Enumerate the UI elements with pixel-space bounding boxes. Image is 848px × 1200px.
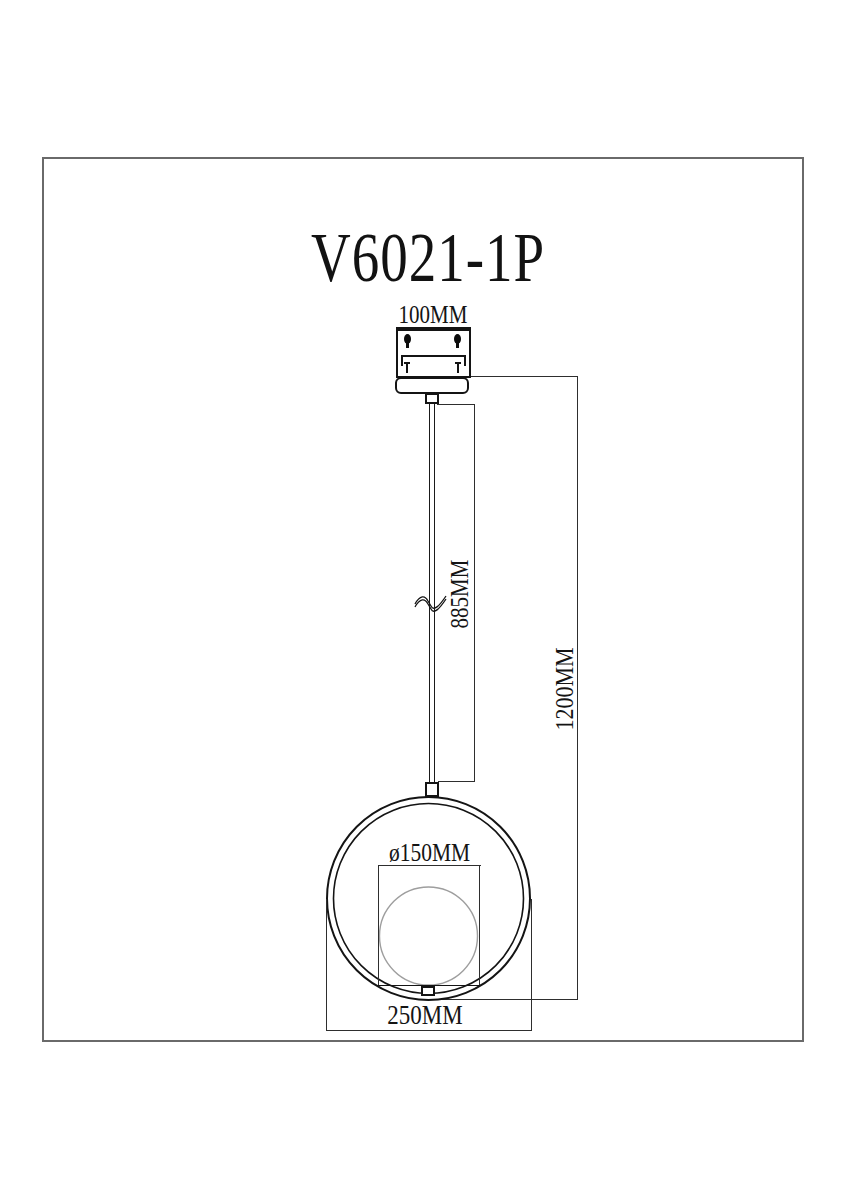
ring-top-connector: [425, 782, 439, 797]
globe-dim-right-line: [479, 865, 480, 985]
ring-inner-circle: [334, 804, 524, 994]
ring-width-left-extension: [326, 899, 327, 1031]
bottom-lamp-holder: [421, 986, 435, 996]
globe-dim-top-line: [378, 865, 481, 866]
ring-width-dimension-label: 250MM: [387, 1001, 462, 1031]
technical-drawing-page: V6021-1P 100MM 885MM 1200MM: [0, 0, 848, 1200]
globe-dim-left-line: [378, 865, 379, 985]
cable-break-icon: [415, 596, 446, 611]
ring-outer-circle: [327, 797, 530, 1000]
glass-globe-circle: [380, 887, 478, 985]
ring-width-right-extension: [531, 899, 532, 1031]
